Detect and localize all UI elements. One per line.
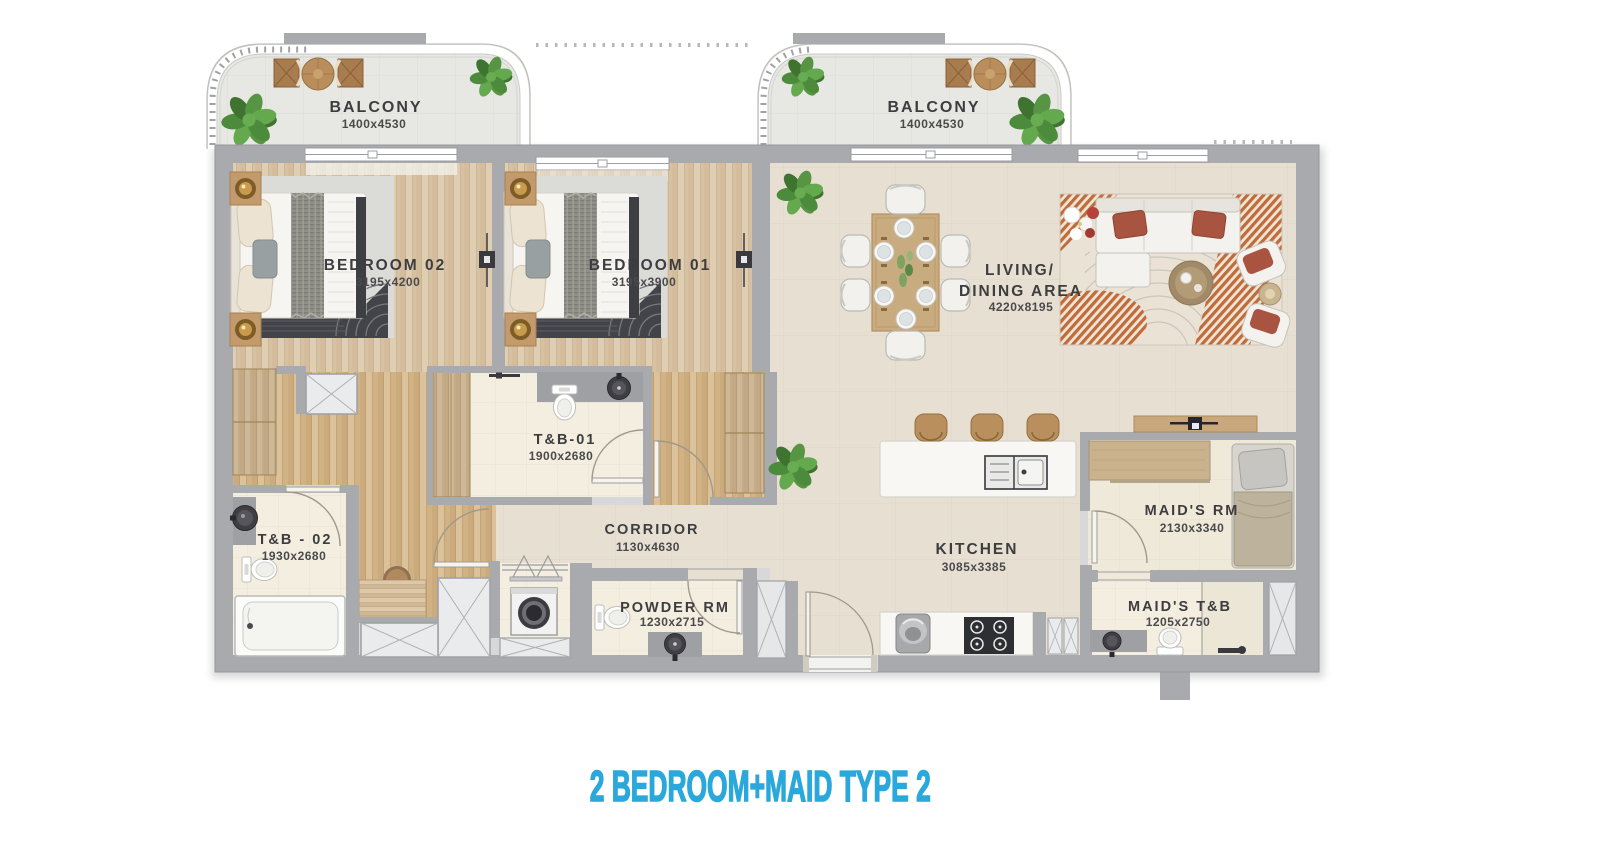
svg-text:MAID'S RM: MAID'S RM [1145,503,1240,519]
svg-text:3195x4200: 3195x4200 [356,275,421,289]
svg-text:KITCHEN: KITCHEN [936,541,1019,558]
svg-text:1400x4530: 1400x4530 [900,117,965,131]
svg-text:DINING AREA: DINING AREA [959,283,1083,300]
svg-text:BEDROOM 02: BEDROOM 02 [324,257,447,274]
svg-text:1930x2680: 1930x2680 [262,549,327,563]
svg-text:T&B-01: T&B-01 [534,432,597,448]
svg-text:CORRIDOR: CORRIDOR [605,522,700,538]
svg-text:LIVING/: LIVING/ [985,262,1055,279]
svg-text:BEDROOM 01: BEDROOM 01 [589,257,712,274]
svg-text:1205x2750: 1205x2750 [1146,615,1211,629]
svg-text:T&B - 02: T&B - 02 [258,532,333,548]
svg-text:3195x3900: 3195x3900 [612,275,677,289]
svg-text:3085x3385: 3085x3385 [942,560,1007,574]
svg-text:MAID'S T&B: MAID'S T&B [1128,599,1232,615]
svg-text:1130x4630: 1130x4630 [616,540,680,554]
svg-text:BALCONY: BALCONY [329,99,422,116]
svg-text:BALCONY: BALCONY [887,99,980,116]
svg-text:POWDER RM: POWDER RM [620,600,730,616]
svg-text:1900x2680: 1900x2680 [529,449,594,463]
svg-text:1400x4530: 1400x4530 [342,117,407,131]
svg-text:4220x8195: 4220x8195 [989,300,1054,314]
svg-text:1230x2715: 1230x2715 [640,615,705,629]
svg-text:2130x3340: 2130x3340 [1160,521,1225,535]
